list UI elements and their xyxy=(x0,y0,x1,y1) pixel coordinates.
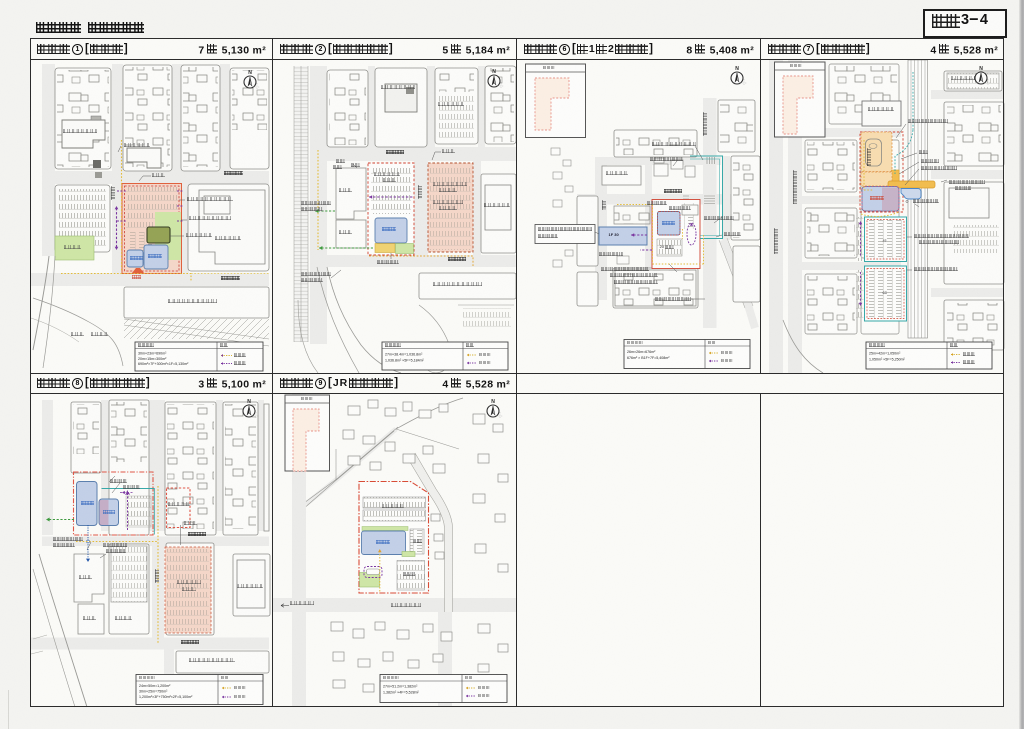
svg-text:25m×42m=1,050m²: 25m×42m=1,050m² xyxy=(869,351,901,355)
svg-text:26m×26m=676m²: 26m×26m=676m² xyxy=(627,350,656,354)
svg-text:30m×25m=750m²: 30m×25m=750m² xyxy=(139,689,168,693)
svg-text:30m×23m=690m²: 30m×23m=690m² xyxy=(138,351,167,355)
svg-text:676m² × B1F+7F=5,408m²: 676m² × B1F+7F=5,408m² xyxy=(627,356,670,360)
svg-text:24m×50m=1,200m²: 24m×50m=1,200m² xyxy=(139,684,171,688)
svg-text:1,200m²×3F+750m²×2F=5,100m²: 1,200m²×3F+750m²×2F=5,100m² xyxy=(139,695,193,699)
svg-text:27m×51.2m=1,382m²: 27m×51.2m=1,382m² xyxy=(383,684,418,688)
svg-text:1,050m² ×5F=5,250m²: 1,050m² ×5F=5,250m² xyxy=(869,357,906,361)
svg-text:20m×15m=300m²: 20m×15m=300m² xyxy=(138,356,167,360)
svg-text:1,036.8m² ×5F=5,184m²: 1,036.8m² ×5F=5,184m² xyxy=(385,358,425,362)
svg-text:27m×38.4m=1,036.8m²: 27m×38.4m=1,036.8m² xyxy=(385,352,423,356)
svg-text:1,382m² ×4F=5,528m²: 1,382m² ×4F=5,528m² xyxy=(383,690,420,694)
svg-text:690m²×7F+300m²×1F=5,130m²: 690m²×7F+300m²×1F=5,130m² xyxy=(138,362,189,366)
